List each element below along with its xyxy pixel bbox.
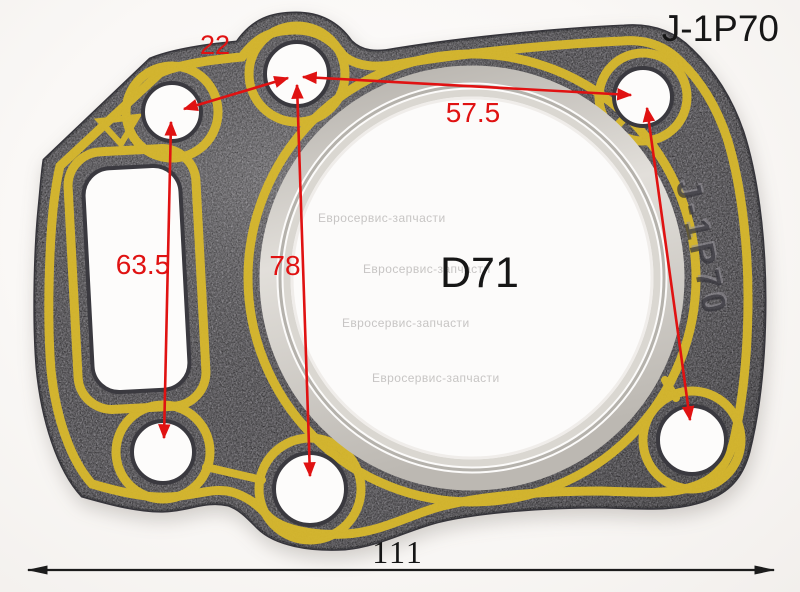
dimension-label-22: 22: [200, 30, 230, 60]
dimension-label-78: 78: [269, 250, 300, 281]
dimension-label-57-5: 57.5: [446, 97, 501, 128]
watermark-1: Евросервис-запчасти: [318, 211, 446, 225]
bolt-hole-bottom-right: [658, 406, 726, 474]
dimension-label-111: 111: [372, 534, 424, 570]
watermark-3: Евросервис-запчасти: [342, 316, 470, 330]
product-photo: J-1P70 J-1P70 Евросервис-запчасти Евросе…: [0, 0, 800, 592]
bolt-hole-top-right: [614, 68, 672, 126]
bore-diameter-label: D71: [440, 249, 519, 297]
watermark-4: Евросервис-запчасти: [372, 371, 500, 385]
product-code-label: J-1P70: [662, 8, 779, 49]
dimension-label-63-5: 63.5: [116, 249, 171, 280]
gasket: J-1P70 J-1P70: [0, 0, 800, 592]
gasket-annotated-image: J-1P70 J-1P70 Евросервис-запчасти Евросе…: [0, 0, 800, 592]
